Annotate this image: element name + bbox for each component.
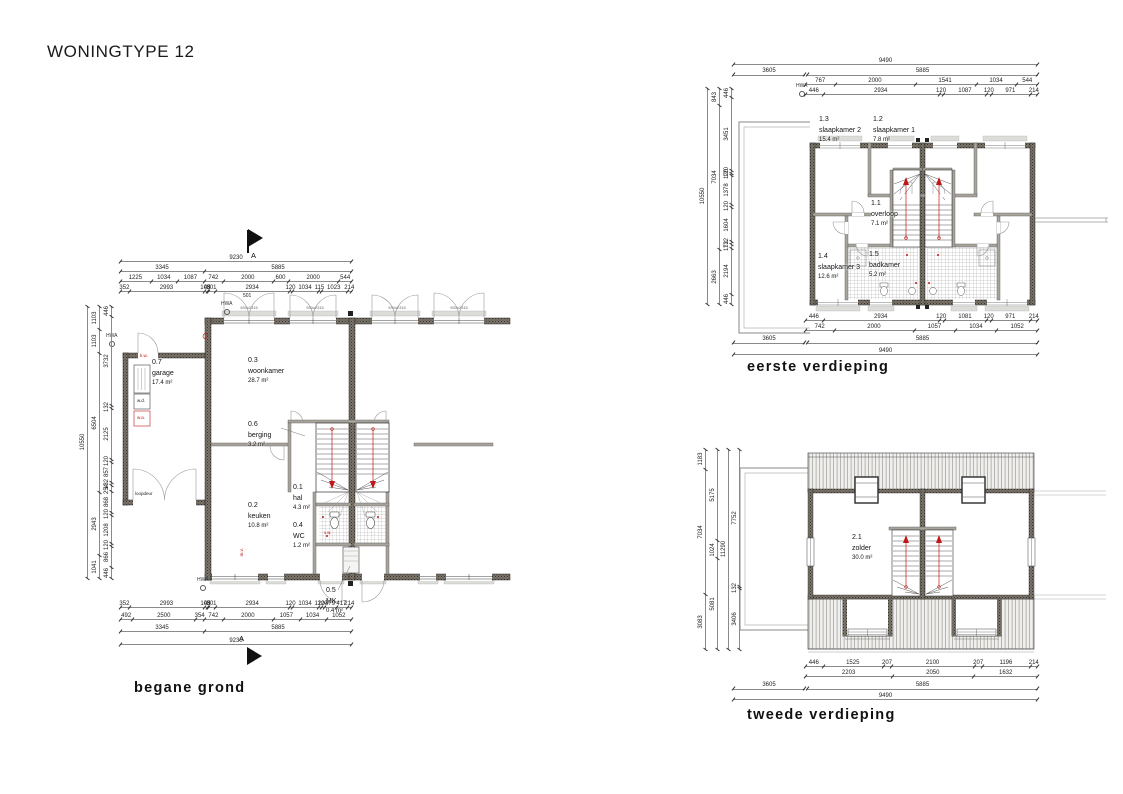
dimension-value: 3345	[155, 625, 168, 631]
dimension-value: 1057	[928, 324, 941, 330]
dimension-segment: 3451	[722, 97, 732, 170]
dimension-segment: 446	[805, 311, 823, 321]
dimension-value: 1081	[958, 314, 971, 320]
dimension-value: 9490	[879, 348, 892, 354]
dimension-value: 1087	[958, 88, 971, 94]
dimension-row: 9230	[120, 252, 352, 262]
room-area: 7.8 m²	[873, 136, 915, 145]
room-label-zolder: 2.1 zolder 30.0 m²	[852, 533, 872, 563]
dimension-value: 1034	[969, 324, 982, 330]
dimension-segment: 6504	[90, 353, 100, 492]
dimension-row: 44629341201087120971214	[805, 85, 1038, 95]
dimension-value: 5175	[710, 488, 716, 501]
dimension-row: 9490	[733, 55, 1038, 65]
dimension-segment: 1541	[915, 75, 976, 85]
dimension-segment: 2993	[129, 282, 204, 292]
dimension-value: 214	[344, 285, 354, 291]
dimension-segment: 767	[805, 75, 835, 85]
dimension-segment: 7034	[710, 105, 720, 249]
dimension-value: 2194	[724, 265, 730, 278]
dimension-segment: 479	[324, 598, 336, 608]
room-name: berging	[248, 431, 271, 442]
room-area: 3.2 m²	[248, 441, 271, 450]
dimension-row: 5885	[807, 679, 1038, 690]
dimension-value: 10550	[700, 188, 706, 205]
dimension-value: 971	[1005, 314, 1015, 320]
dimension-value: 2000	[241, 613, 254, 619]
room-name: garage	[152, 369, 174, 380]
room-number: 0.2	[248, 501, 271, 512]
dimension-value: 767	[815, 78, 825, 84]
dimension-value: 2000	[867, 324, 880, 330]
dimension-segment: 971	[991, 311, 1029, 321]
dimension-value: 1604	[724, 218, 730, 231]
dimension-value: 446	[724, 294, 730, 304]
caption-begane-grond: begane grond	[134, 680, 245, 696]
dimension-value: 446	[809, 660, 819, 666]
dimension-value: 2100	[926, 660, 939, 666]
dimension-value: 214	[1029, 314, 1039, 320]
dimension-segment: 352	[120, 598, 129, 608]
dimension-value: 866	[104, 552, 110, 562]
dimension-value: 2934	[874, 88, 887, 94]
dimension-value: 3083	[698, 615, 704, 628]
annotation-vw: v.w.	[324, 531, 331, 536]
dimension-value: 3605	[762, 68, 775, 74]
dimension-segment: 742	[204, 610, 223, 620]
dimension-value: 544	[340, 275, 350, 281]
hwa-label: HWA	[197, 577, 208, 583]
dimension-value: 446	[809, 314, 819, 320]
dimension-segment: 1041	[90, 556, 100, 578]
room-name: hal	[293, 494, 310, 505]
dimension-segment: 1087	[943, 85, 986, 95]
dimension-segment: 9490	[733, 690, 1038, 700]
dimension-segment: 1196	[982, 657, 1029, 667]
annotation-loopdeur: loopdeur	[135, 492, 153, 497]
dimension-segment: 2000	[835, 75, 914, 85]
dimension-column: 4463732132212512085713225486812012081208…	[102, 306, 112, 578]
dimension-value: 446	[104, 568, 110, 578]
dimension-column: 77521323406	[730, 449, 740, 649]
dimension-segment: 446	[805, 85, 823, 95]
dimension-segment: 866	[102, 547, 112, 568]
dimension-row: 9490	[733, 690, 1038, 700]
room-name: zolder	[852, 544, 872, 555]
dimension-row: 446152520721002071196214	[805, 657, 1038, 667]
dimension-segment: 1103	[90, 306, 100, 330]
dimension-segment: 1057	[273, 610, 300, 620]
dimension-value: 3732	[104, 354, 110, 367]
room-label-woonkamer: 0.3 woonkamer 28.7 m²	[248, 356, 284, 386]
dimension-segment: 11290	[719, 449, 729, 649]
dimension-segment: 2000	[288, 272, 338, 282]
dimension-row: 49225003547422000105710341052	[120, 610, 352, 620]
dimension-segment: 1632	[973, 667, 1038, 677]
dimension-value: 3451	[724, 127, 730, 140]
dimension-segment: 544	[1016, 75, 1038, 85]
dimension-row: 12251034108774220006002000544	[120, 272, 352, 282]
room-label-wc: 0.4 WC 1.2 m²	[293, 521, 310, 551]
neighbor-roof-lines	[1034, 491, 1106, 599]
room-label-overloop: 1.1 overloop 7.1 m²	[871, 199, 898, 229]
room-number: 0.4	[293, 521, 310, 532]
window-size-label: 930x2315	[226, 305, 272, 310]
hwa-drain-icon	[200, 585, 206, 591]
dimension-row: 33455885	[120, 262, 352, 272]
dimension-segment: 354	[195, 610, 204, 620]
room-label-badkamer: 1.5 badkamer 5.2 m²	[869, 250, 900, 280]
dimension-segment: 2000	[834, 321, 913, 331]
annotation-wa: w.a.	[137, 416, 145, 421]
room-label-garage: 0.7 garage 17.4 m²	[152, 358, 174, 388]
dimension-row: 3605	[733, 333, 805, 344]
room-area: 7.1 m²	[871, 220, 898, 229]
garage-roof-outline	[740, 468, 810, 630]
dimension-value: 5885	[916, 682, 929, 688]
dimension-segment: 971	[991, 85, 1029, 95]
dimension-segment: 446	[805, 657, 823, 667]
knee-walls	[808, 489, 1034, 599]
dimension-segment: 214	[347, 282, 352, 292]
room-number: 0.5	[326, 586, 343, 597]
dimension-segment: 1052	[996, 321, 1038, 331]
dimension-row: 3605	[733, 679, 805, 690]
dimension-value: 1024	[710, 543, 716, 556]
dimension-value: 446	[809, 88, 819, 94]
dimension-value: 214	[344, 601, 354, 607]
dimension-row: 5885	[807, 333, 1038, 344]
dimension-value: 742	[208, 613, 218, 619]
dimension-column: 517510245081	[708, 449, 718, 649]
staircase	[316, 423, 349, 516]
room-number: 0.3	[248, 356, 284, 367]
dimension-segment: 3345	[120, 262, 204, 272]
dimension-row: 9490	[733, 345, 1038, 355]
dimension-column: 84370342663	[710, 88, 720, 304]
dimension-segment: 5081	[708, 559, 718, 649]
dimension-segment: 2934	[823, 85, 939, 95]
dimension-segment: 2500	[132, 610, 195, 620]
room-number: 0.6	[248, 420, 271, 431]
dimension-value: 3605	[762, 336, 775, 342]
dimension-value: 2934	[874, 314, 887, 320]
dimension-segment: 352	[120, 282, 129, 292]
dimension-segment: 7752	[730, 449, 740, 586]
dimension-segment: 1034	[955, 321, 996, 331]
annotation-kw: k.w.	[140, 354, 148, 359]
dimension-value: 3406	[732, 612, 738, 625]
room-name: WC	[293, 532, 310, 543]
dimension-value: 2203	[842, 670, 855, 676]
annotation-wd: w.d.	[137, 399, 145, 404]
dimension-value: 868	[104, 497, 110, 507]
dimension-segment: 2943	[90, 493, 100, 556]
dimension-segment: 2934	[215, 282, 289, 292]
dimension-segment: 5175	[708, 449, 718, 541]
dimension-value: 3605	[762, 682, 775, 688]
dimension-segment: 1034	[151, 272, 177, 282]
dimension-extra: 501	[243, 293, 251, 299]
room-area: 15.4 m²	[819, 136, 861, 145]
dimension-segment: 214	[1030, 657, 1038, 667]
dimension-value: 5885	[916, 336, 929, 342]
room-number: 2.1	[852, 533, 872, 544]
dimension-value: 492	[121, 613, 131, 619]
dimension-value: 2000	[868, 78, 881, 84]
dimension-row: 9230	[120, 635, 352, 645]
room-label-hal: 0.1 hal 4.3 m²	[293, 483, 310, 513]
garage-roof-outline	[739, 122, 810, 333]
dimension-segment: 544	[338, 272, 352, 282]
dimension-segment: 843	[710, 88, 720, 105]
dimension-column: 4463451120120137812016041321722194446	[722, 88, 732, 304]
window-size-label: 930x2315	[374, 305, 420, 310]
room-number: 0.7	[152, 358, 174, 369]
dimension-segment: 10550	[78, 306, 88, 578]
dimension-value: 479	[325, 601, 335, 607]
dimension-segment: 1087	[177, 272, 204, 282]
dimension-segment: 214	[1030, 85, 1038, 95]
dimension-column: 11031103650429431041	[90, 306, 100, 578]
dimension-value: 742	[208, 275, 218, 281]
dimension-segment: 2000	[223, 610, 273, 620]
room-label-slaapkamer1: 1.2 slaapkamer 1 7.8 m²	[873, 115, 915, 145]
dimension-segment: 742	[204, 272, 223, 282]
dimension-value: 971	[1005, 88, 1015, 94]
dimension-value: 5885	[271, 265, 284, 271]
dimension-row: 33455885	[120, 622, 352, 632]
dimension-value: 1034	[157, 275, 170, 281]
dimension-value: 11290	[721, 541, 727, 557]
room-area: 12.6 m²	[818, 273, 860, 282]
dimension-value: 1034	[306, 613, 319, 619]
dimension-segment: 2993	[129, 598, 204, 608]
dimension-value: 1525	[846, 660, 859, 666]
room-name: overloop	[871, 210, 898, 221]
dimension-value: 544	[1022, 78, 1032, 84]
dimension-value: 7752	[732, 511, 738, 524]
dimension-value: 1034	[298, 601, 311, 607]
dimension-value: 1034	[298, 285, 311, 291]
dimension-segment: 9230	[120, 252, 352, 262]
neighbor-roof-lines	[1035, 218, 1108, 222]
door-arcs	[133, 293, 484, 602]
room-number: 1.5	[869, 250, 900, 261]
dimension-value: 1208	[104, 523, 110, 536]
dimension-value: 7034	[698, 526, 704, 539]
dimension-value: 1052	[1010, 324, 1023, 330]
room-number: 1.1	[871, 199, 898, 210]
dimension-segment: 207	[883, 657, 891, 667]
dimension-segment: 1525	[823, 657, 883, 667]
dimension-segment: 2663	[710, 249, 720, 304]
dimension-value: 1023	[327, 285, 340, 291]
room-name: slaapkamer 1	[873, 126, 915, 137]
window-size-label: 930x2315	[292, 305, 338, 310]
dimension-segment: 1034	[300, 610, 326, 620]
window-size-label: 930x2315	[436, 305, 482, 310]
dimension-segment: 2125	[102, 409, 112, 460]
room-label-berging: 0.6 berging 3.2 m²	[248, 420, 271, 450]
dimension-segment: 9490	[733, 345, 1038, 355]
annotation-mv: m.v.	[240, 548, 245, 556]
dimension-segment: 3345	[120, 622, 204, 632]
dimension-row: 352299310045301293412010341151023214	[120, 282, 352, 292]
dimension-value: 5885	[271, 625, 284, 631]
dimension-column: 118370343083	[696, 449, 706, 649]
dimension-segment: 1057	[914, 321, 956, 331]
room-label-slaapkamer2: 1.3 slaapkamer 2 15.4 m²	[819, 115, 861, 145]
dimension-segment: 600	[273, 272, 288, 282]
dimension-segment: 1103	[90, 330, 100, 354]
dimension-segment: 3083	[696, 594, 706, 649]
dimension-value: 2993	[160, 285, 173, 291]
dimension-segment: 214	[1030, 311, 1038, 321]
drawing-sheet: WONINGTYPE 12	[0, 0, 1123, 794]
dimension-segment: 2203	[805, 667, 892, 677]
room-number: 1.2	[873, 115, 915, 126]
dimension-segment: 2000	[223, 272, 273, 282]
dimension-value: 9490	[879, 693, 892, 699]
dimension-segment: 1604	[722, 208, 732, 242]
room-area: 28.7 m²	[248, 377, 284, 386]
room-name: badkamer	[869, 261, 900, 272]
room-name: slaapkamer 3	[818, 263, 860, 274]
dimension-value: 1034	[989, 78, 1002, 84]
dimension-value: 1103	[92, 335, 98, 348]
dimension-value: 9230	[229, 638, 242, 644]
dimension-value: 214	[1029, 660, 1039, 666]
room-area: 4.3 m²	[293, 504, 310, 513]
dimension-value: 1196	[999, 660, 1012, 666]
dimension-segment: 1225	[120, 272, 151, 282]
dimension-column: 11290	[719, 449, 729, 649]
dimension-segment: 1034	[976, 75, 1017, 85]
dimension-segment: 1023	[321, 282, 347, 292]
dimension-segment: 742	[805, 321, 834, 331]
dimension-segment: 214	[347, 598, 352, 608]
dimension-value: 2000	[241, 275, 254, 281]
dimension-segment: 2934	[215, 598, 289, 608]
dimension-segment: 3406	[730, 589, 740, 649]
dimension-value: 7034	[712, 171, 718, 184]
dimension-column: 10550	[78, 306, 88, 578]
dimension-value: 5081	[710, 597, 716, 610]
caption-tweede-verdieping: tweede verdieping	[747, 707, 896, 723]
dimension-segment: 446	[722, 295, 732, 304]
dimension-segment: 3732	[102, 317, 112, 406]
dimension-row: 3522993100453012934120103412012047941721…	[120, 598, 352, 608]
room-label-slaapkamer3: 1.4 slaapkamer 3 12.6 m²	[818, 252, 860, 282]
dimension-row: 220320501632	[805, 667, 1038, 677]
dimension-row: 767200015411034544	[805, 75, 1038, 85]
dimension-segment: 2194	[722, 248, 732, 295]
dimension-value: 3345	[155, 265, 168, 271]
dimension-column: 10550	[698, 88, 708, 304]
dimension-value: 1052	[332, 613, 345, 619]
dimension-value: 1378	[724, 184, 730, 197]
dimension-segment: 2050	[892, 667, 973, 677]
dimension-value: 9490	[879, 58, 892, 64]
floor-plan-tweede-verdieping	[690, 435, 1120, 680]
dimension-value: 1632	[999, 670, 1012, 676]
dimension-value: 2934	[245, 285, 258, 291]
dimension-value: 857	[104, 467, 110, 477]
room-area: 17.4 m²	[152, 379, 174, 388]
dimension-segment: 5885	[204, 262, 352, 272]
dimension-segment: 492	[120, 610, 132, 620]
dimension-segment: 5885	[204, 622, 352, 632]
dimension-value: 742	[815, 324, 825, 330]
dimension-value: 843	[712, 92, 718, 102]
dimension-value: 2993	[160, 601, 173, 607]
dimension-value: 9230	[229, 255, 242, 261]
dimension-value: 2050	[926, 670, 939, 676]
dimension-value: 1541	[938, 78, 951, 84]
room-area: 1.2 m²	[293, 542, 310, 551]
room-number: 1.4	[818, 252, 860, 263]
dimension-value: 10550	[80, 434, 86, 451]
dimension-segment: 2934	[823, 311, 939, 321]
dimension-value: 1103	[92, 311, 98, 324]
dimension-segment: 7034	[696, 470, 706, 595]
floor-plan-begane-grond	[100, 288, 520, 608]
dimension-segment: 10550	[698, 88, 708, 304]
dimension-segment: 446	[102, 567, 112, 578]
dimension-value: 2943	[92, 517, 98, 530]
section-marker-flag	[247, 647, 262, 665]
room-name: keuken	[248, 512, 271, 523]
room-label-keuken: 0.2 keuken 10.8 m²	[248, 501, 271, 531]
dimension-value: 2125	[104, 427, 110, 440]
room-area: 10.8 m²	[248, 522, 271, 531]
dimension-value: 1087	[184, 275, 197, 281]
room-number: 0.1	[293, 483, 310, 494]
dimension-value: 2934	[245, 601, 258, 607]
dimension-segment: 9230	[120, 635, 352, 645]
dimension-value: 2500	[157, 613, 170, 619]
room-name: slaapkamer 2	[819, 126, 861, 137]
dimension-value: 5885	[916, 68, 929, 74]
staircase-mirrored	[356, 423, 389, 516]
dimension-value: 1057	[280, 613, 293, 619]
dimension-value: 1183	[698, 453, 704, 466]
hwa-marker: HWA	[197, 578, 208, 591]
dimension-row: 44629341201081120971214	[805, 311, 1038, 321]
dimension-value: 214	[1029, 88, 1039, 94]
section-marker-flag	[248, 229, 263, 247]
dimension-value: 1225	[129, 275, 142, 281]
dimension-segment: 9490	[733, 55, 1038, 65]
room-name: woonkamer	[248, 367, 284, 378]
room-area: 30.0 m²	[852, 554, 872, 563]
dimension-segment: 2100	[891, 657, 974, 667]
dimension-segment: 1081	[944, 311, 987, 321]
dimension-value: 2663	[712, 270, 718, 283]
room-number: 1.3	[819, 115, 861, 126]
dimension-segment: 1052	[326, 610, 352, 620]
page-title: WONINGTYPE 12	[47, 42, 195, 62]
dimension-value: 2000	[307, 275, 320, 281]
dimension-value: 600	[276, 275, 286, 281]
dimension-row: 7422000105710341052	[805, 321, 1038, 331]
room-area: 5.2 m²	[869, 271, 900, 280]
dimension-value: 1041	[92, 560, 98, 573]
dimension-row: 3605	[733, 65, 805, 76]
dimension-value: 6504	[92, 416, 98, 429]
caption-eerste-verdieping: eerste verdieping	[747, 359, 889, 375]
